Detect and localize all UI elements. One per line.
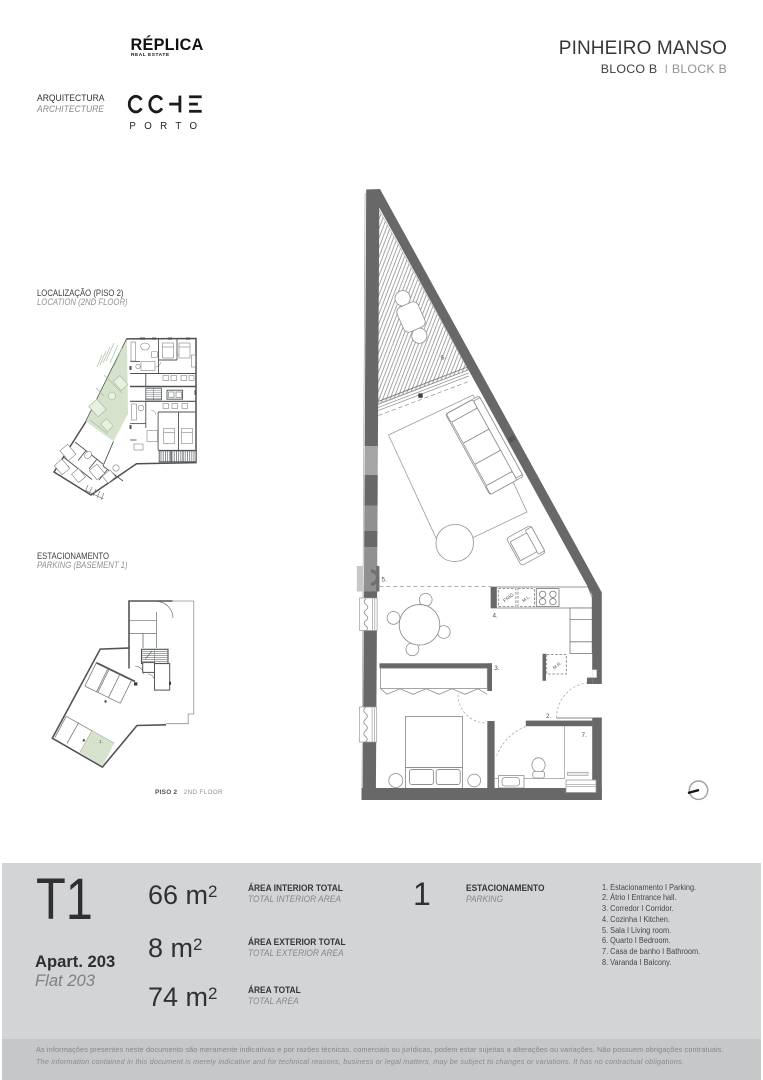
svg-text:1.: 1. <box>99 739 103 745</box>
svg-text:4.: 4. <box>493 613 499 620</box>
svg-text:2.: 2. <box>546 713 552 720</box>
svg-text:3.: 3. <box>494 665 500 672</box>
svg-text:5.: 5. <box>382 577 388 584</box>
svg-text:7.: 7. <box>582 732 588 739</box>
